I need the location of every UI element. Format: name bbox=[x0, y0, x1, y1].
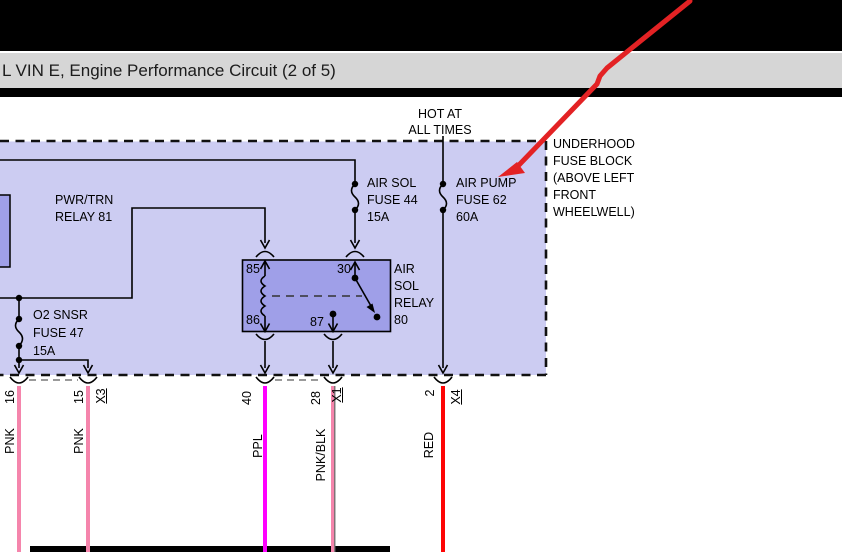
relay-switch-arm bbox=[355, 278, 371, 306]
connector-label-x3: X3 bbox=[94, 361, 108, 431]
page-title: L VIN E, Engine Performance Circuit (2 o… bbox=[0, 61, 336, 81]
wire-color-label-pnk-2: PNK bbox=[72, 406, 86, 476]
o2-snsr-fuse-label: O2 SNSR FUSE 47 15A bbox=[33, 306, 88, 360]
bottom-black-bar bbox=[30, 546, 390, 552]
fuse-62-symbol bbox=[440, 184, 447, 210]
relay-pin-87: 87 bbox=[310, 315, 324, 329]
air-pump-fuse-label: AIR PUMP FUSE 62 60A bbox=[456, 175, 516, 226]
connector-label-x4: X4 bbox=[449, 362, 463, 432]
switch-arm-arrowhead bbox=[367, 304, 376, 314]
title-bar: L VIN E, Engine Performance Circuit (2 o… bbox=[0, 53, 842, 88]
wire-color-label-pnkblk: PNK/BLK bbox=[314, 420, 328, 490]
top-black-bar bbox=[0, 0, 842, 51]
relay-pin-85: 85 bbox=[246, 262, 260, 276]
relay-coil-symbol bbox=[261, 276, 265, 316]
fuse-44-symbol bbox=[352, 184, 359, 210]
relay-pin-86: 86 bbox=[246, 313, 260, 327]
connector-label-x1: X1 bbox=[330, 360, 344, 430]
wire-color-label-ppl: PPL bbox=[251, 411, 265, 481]
fuse-47-symbol bbox=[16, 319, 23, 346]
pwr-trn-relay-label: PWR/TRN RELAY 81 bbox=[55, 192, 113, 226]
relay-pin-30: 30 bbox=[337, 262, 351, 276]
wiring-diagram-viewer: L VIN E, Engine Performance Circuit (2 o… bbox=[0, 0, 842, 552]
pwr-trn-relay-box bbox=[0, 195, 10, 267]
underhood-fuse-block-note: UNDERHOOD FUSE BLOCK (ABOVE LEFT FRONT W… bbox=[553, 136, 635, 221]
wire-color-label-red: RED bbox=[422, 410, 436, 480]
hot-at-all-times-label: HOT AT ALL TIMES bbox=[398, 106, 482, 138]
air-sol-relay-label: AIR SOL RELAY 80 bbox=[394, 261, 434, 329]
title-underline-bar bbox=[0, 88, 842, 97]
wire-color-label-pnk-1: PNK bbox=[3, 406, 17, 476]
air-sol-fuse-label: AIR SOL FUSE 44 15A bbox=[367, 175, 418, 226]
